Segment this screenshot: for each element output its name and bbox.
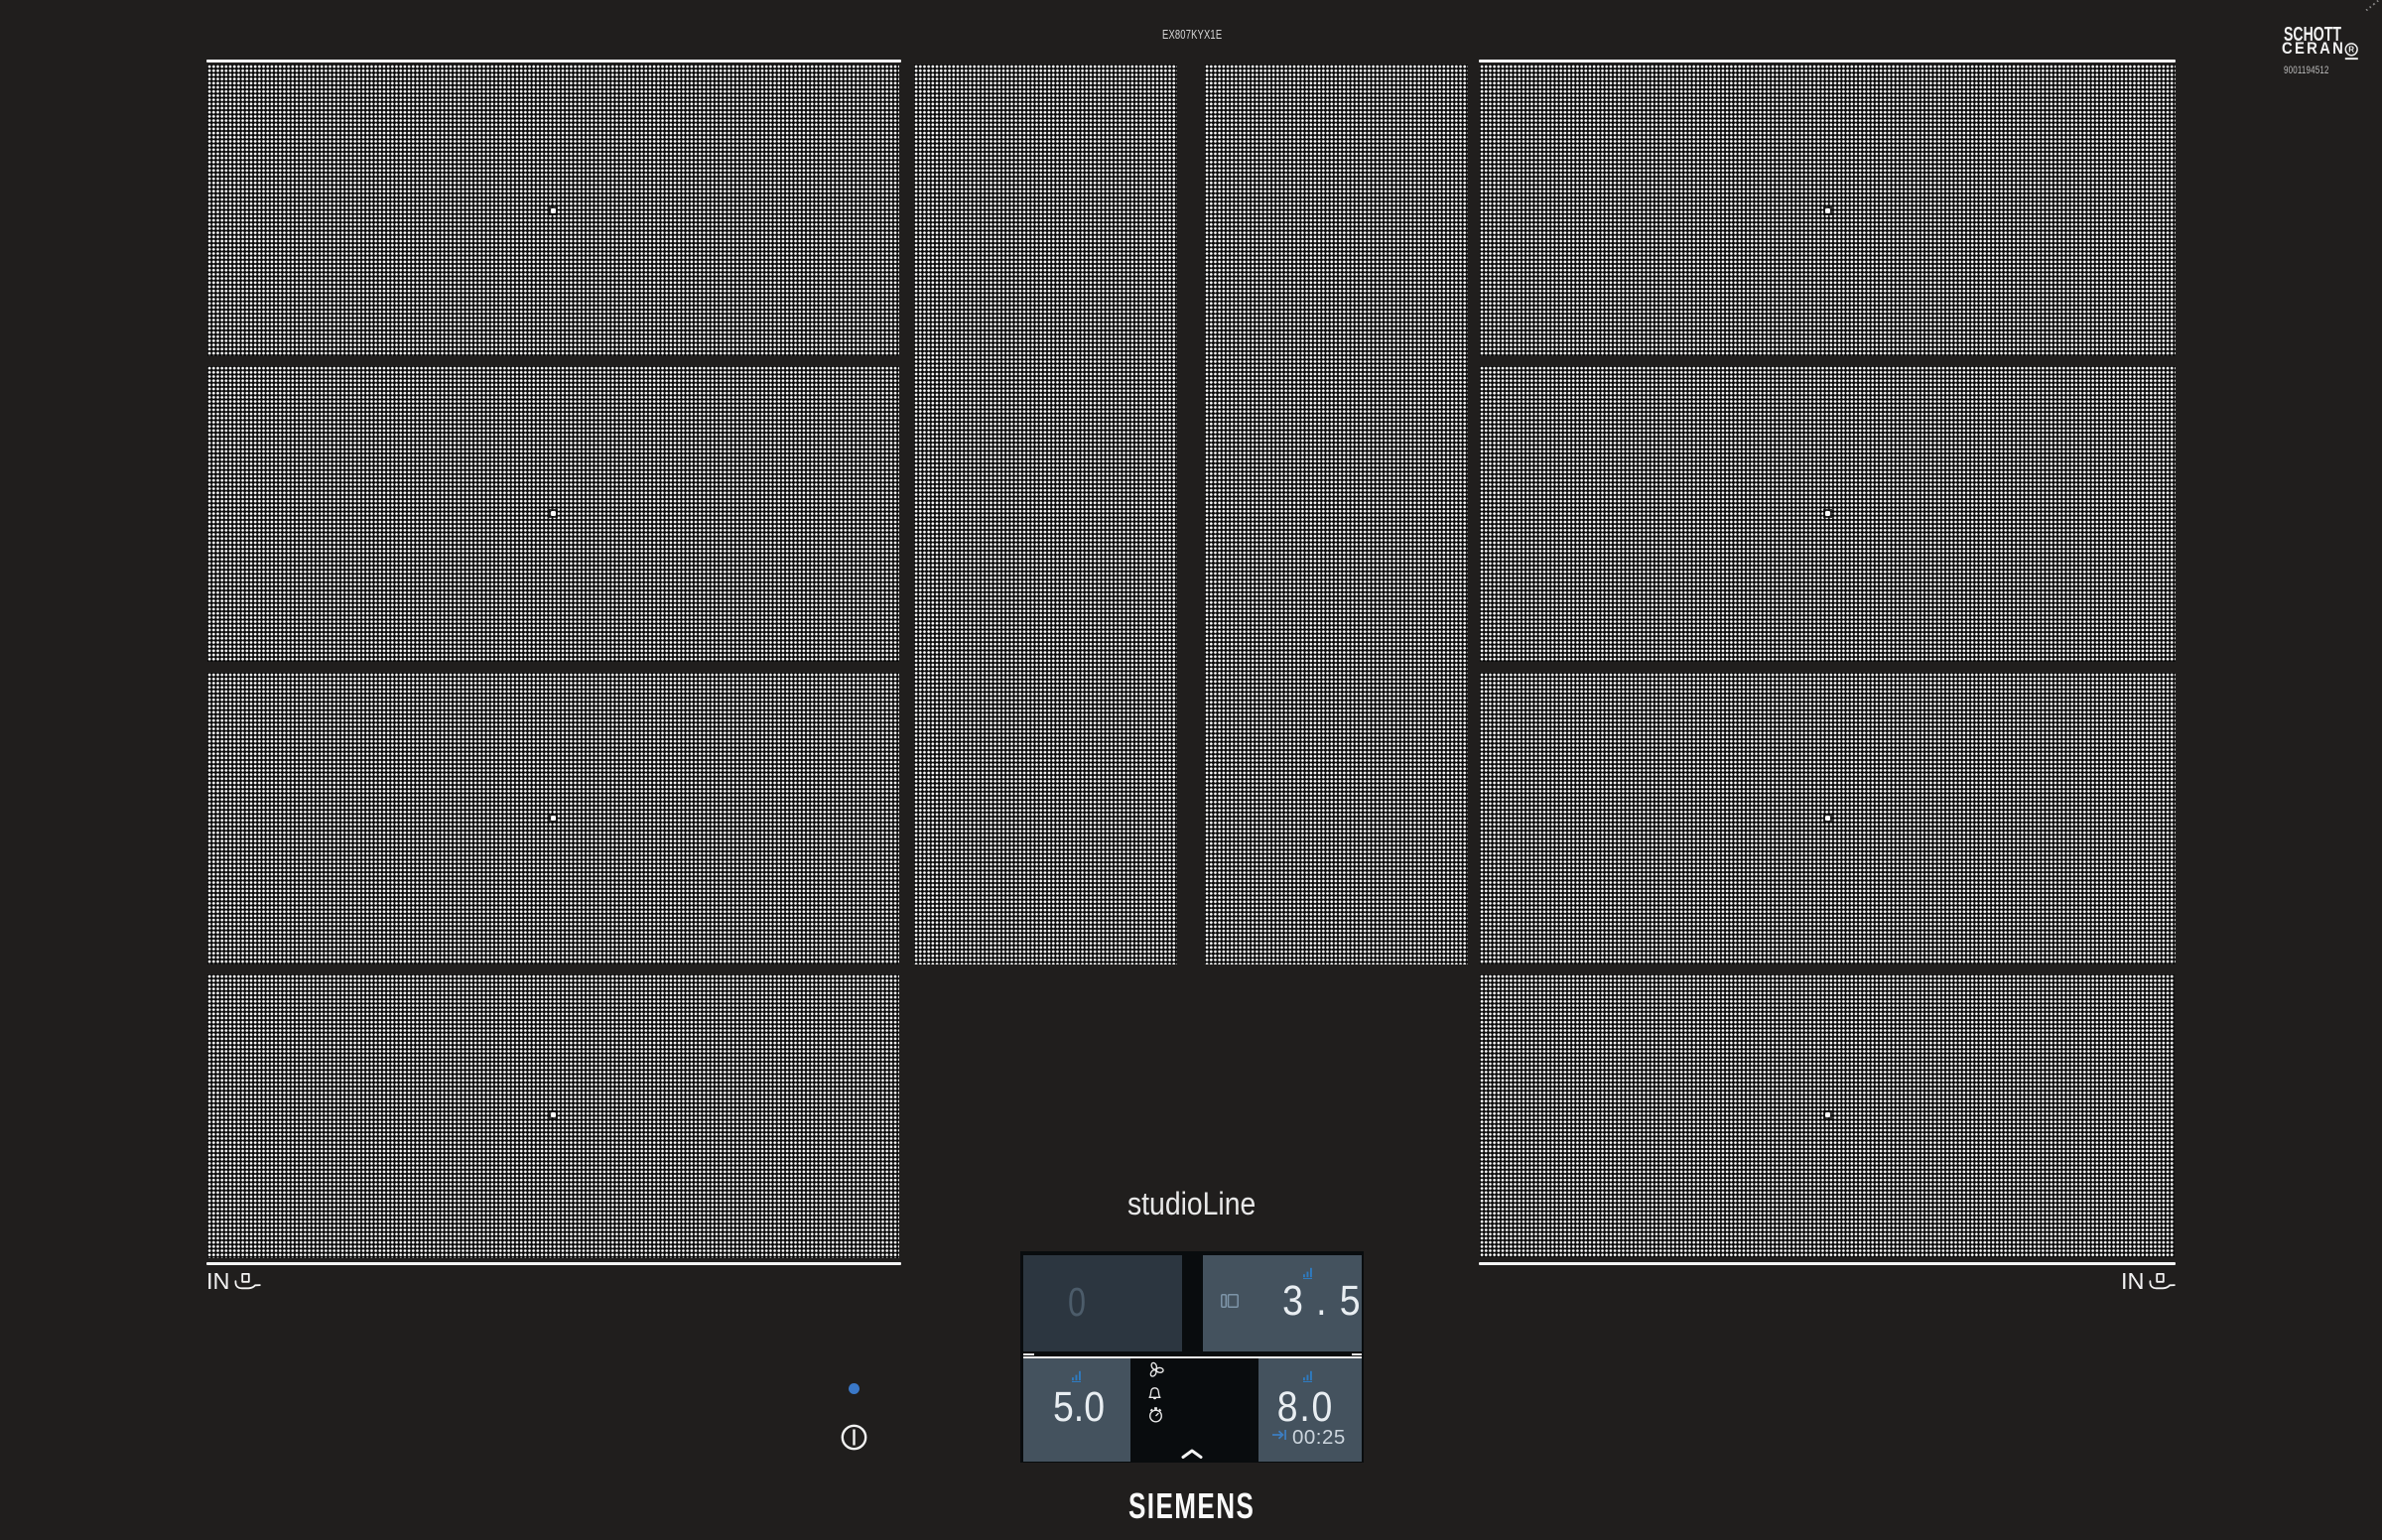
svg-text:R: R [2348, 46, 2354, 55]
